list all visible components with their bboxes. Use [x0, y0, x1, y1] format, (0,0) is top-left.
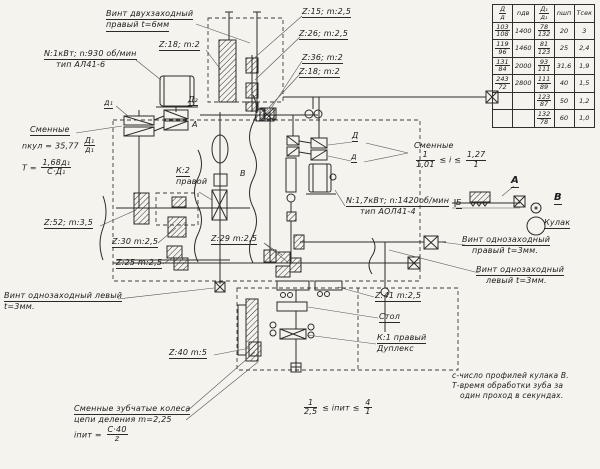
table-cell: 2800	[513, 75, 535, 93]
table-cell: 1,0	[574, 110, 594, 128]
table-header-cell: nдв	[513, 5, 535, 23]
label-z15: Z:15; m:2,5	[302, 7, 351, 18]
table-row: 1318420009311131,61,9	[493, 57, 595, 75]
label-z41: Z:41 m:2,5	[375, 291, 421, 302]
cam-detail-B	[527, 203, 545, 235]
fraction: 1,68д₁ С·Д₁	[41, 159, 71, 177]
table-cell: 78132	[534, 22, 554, 40]
table-cell: 11996	[493, 40, 513, 58]
vertical-feed-screw	[294, 235, 446, 332]
fraction: С·40 z	[107, 426, 128, 444]
table-cell: 25	[554, 40, 574, 58]
table-header-cell: Тсек	[574, 5, 594, 23]
table-cell: 13278	[534, 110, 554, 128]
fraction: 1 1,01	[416, 151, 435, 169]
table-header-cell: Дд	[493, 5, 513, 23]
table-cell: 40	[554, 75, 574, 93]
label-change-pulleys-right: Сменные 1 1,01 ≤ i ≤ 1,27 1	[414, 141, 488, 169]
label-change-pulleys: Сменные	[30, 125, 70, 136]
table-cell	[493, 92, 513, 110]
letter-A: А	[192, 120, 198, 130]
hob-motor	[306, 164, 336, 194]
table-row: 11996146081123252,4	[493, 40, 595, 58]
label-cam: Кулак	[544, 218, 570, 229]
fraction: 1 2,5	[304, 399, 317, 417]
table-drive	[277, 281, 342, 372]
table-cell: 11189	[534, 75, 554, 93]
detail-A	[452, 192, 525, 208]
label-table: Стол	[379, 312, 400, 323]
label-z52: Z:52; m:3,5	[44, 218, 93, 229]
table-support	[238, 299, 261, 361]
label-pulley-d: д	[351, 152, 357, 163]
label-section-A: А	[511, 174, 519, 188]
tool-spindle	[212, 112, 228, 292]
feed-change-gears	[200, 55, 322, 121]
main-motor	[156, 76, 198, 112]
table-cell: 24372	[493, 75, 513, 93]
fraction: 1,27 1	[466, 151, 487, 169]
label-index-change-gears: Сменные зубчатые колеса цепи деления m=2…	[74, 404, 190, 444]
formula-T: T = 1,68д₁ С·Д₁	[22, 159, 73, 177]
table-cell: 2,4	[574, 40, 594, 58]
label-z18-top: Z:18; m:2	[159, 40, 200, 51]
table-cell: 1,2	[574, 92, 594, 110]
table-cell: 103108	[493, 22, 513, 40]
label-single-screw-left: Винт однозаходный левый t=3мм.	[476, 265, 564, 287]
table-cell	[513, 110, 535, 128]
table-row: 24372280011189401,5	[493, 75, 595, 93]
label-b-small: Б	[456, 198, 462, 209]
label-z18-lower: Z:18; m:2	[299, 67, 340, 78]
kinematic-scheme: ДдnдвД₁д₁nшпТсек103108140078132203119961…	[0, 0, 600, 469]
label-worm-k2: К:2 правой	[176, 166, 207, 188]
table-cell: 1460	[513, 40, 535, 58]
fraction: 4 1	[364, 399, 371, 417]
formula-ipit-range: 1 2,5 ≤ iпит ≤ 4 1	[302, 399, 374, 417]
letter-d1: д₁	[104, 98, 113, 109]
label-two-start-screw: Винт двухзаходный правый t=6мм	[106, 9, 193, 32]
table-cell: 31,6	[554, 57, 574, 75]
table-row: 13278601,0	[493, 110, 595, 128]
label-worm-k1: К:1 правый Дуплекс	[377, 333, 426, 355]
label-footnote: с-число профилей кулака В. Т-время обраб…	[452, 371, 569, 400]
table-cell: 20	[554, 22, 574, 40]
letter-B: В	[240, 169, 246, 179]
table-cell: 81123	[534, 40, 554, 58]
label-pulley-D: Д	[352, 131, 358, 142]
label-hob-motor: N:1,7кВт; n:1420об/мин тип АОЛ41-4	[346, 196, 449, 218]
table-header-cell: nшп	[554, 5, 574, 23]
table-cell	[513, 92, 535, 110]
table-cell: 1,9	[574, 57, 594, 75]
table-header-cell: Д₁д₁	[534, 5, 554, 23]
label-z36: Z:36; m:2	[302, 53, 343, 64]
worm-k1-duplex	[270, 322, 314, 339]
table-cell: 2000	[513, 57, 535, 75]
table-cell: 1400	[513, 22, 535, 40]
table-cell: 12387	[534, 92, 554, 110]
label-z25: Z:25 m:2,5	[116, 258, 162, 269]
fraction: Д₁ д₁	[84, 137, 96, 155]
label-single-screw-right: Винт однозаходный правый t=3мм.	[462, 235, 550, 257]
shaft-B	[264, 108, 276, 262]
letter-D2: Д₂	[188, 95, 198, 106]
cross-feed-screw	[283, 91, 498, 103]
label-z40: Z:40 m:5	[169, 348, 207, 359]
label-z29: Z:29 m:2,5	[211, 234, 257, 245]
table-cell: 3	[574, 22, 594, 40]
table-row: 12387501,2	[493, 92, 595, 110]
table-housing-outline	[237, 288, 458, 370]
table-cell: 60	[554, 110, 574, 128]
label-main-motor: N:1кВт; n:930 об/мин тип АЛ41-6	[44, 49, 137, 71]
label-z30: Z:30 m:2,5	[112, 237, 158, 248]
ratio-table: ДдnдвД₁д₁nшпТсек103108140078132203119961…	[492, 4, 595, 128]
table-cell: 93111	[534, 57, 554, 75]
table-cell: 50	[554, 92, 574, 110]
table-cell: 13184	[493, 57, 513, 75]
label-single-screw-left-bottom: Винт однозаходный левый t=3мм.	[4, 291, 122, 313]
label-section-B: В	[554, 191, 562, 205]
table-cell: 1,5	[574, 75, 594, 93]
formula-nkul: nкул = 35,77 Д₁ д₁	[22, 137, 97, 155]
hob-belt-drive	[286, 97, 327, 263]
label-z26: Z:26; m:2,5	[299, 29, 348, 40]
table-cell	[493, 110, 513, 128]
table-row: 103108140078132203	[493, 22, 595, 40]
